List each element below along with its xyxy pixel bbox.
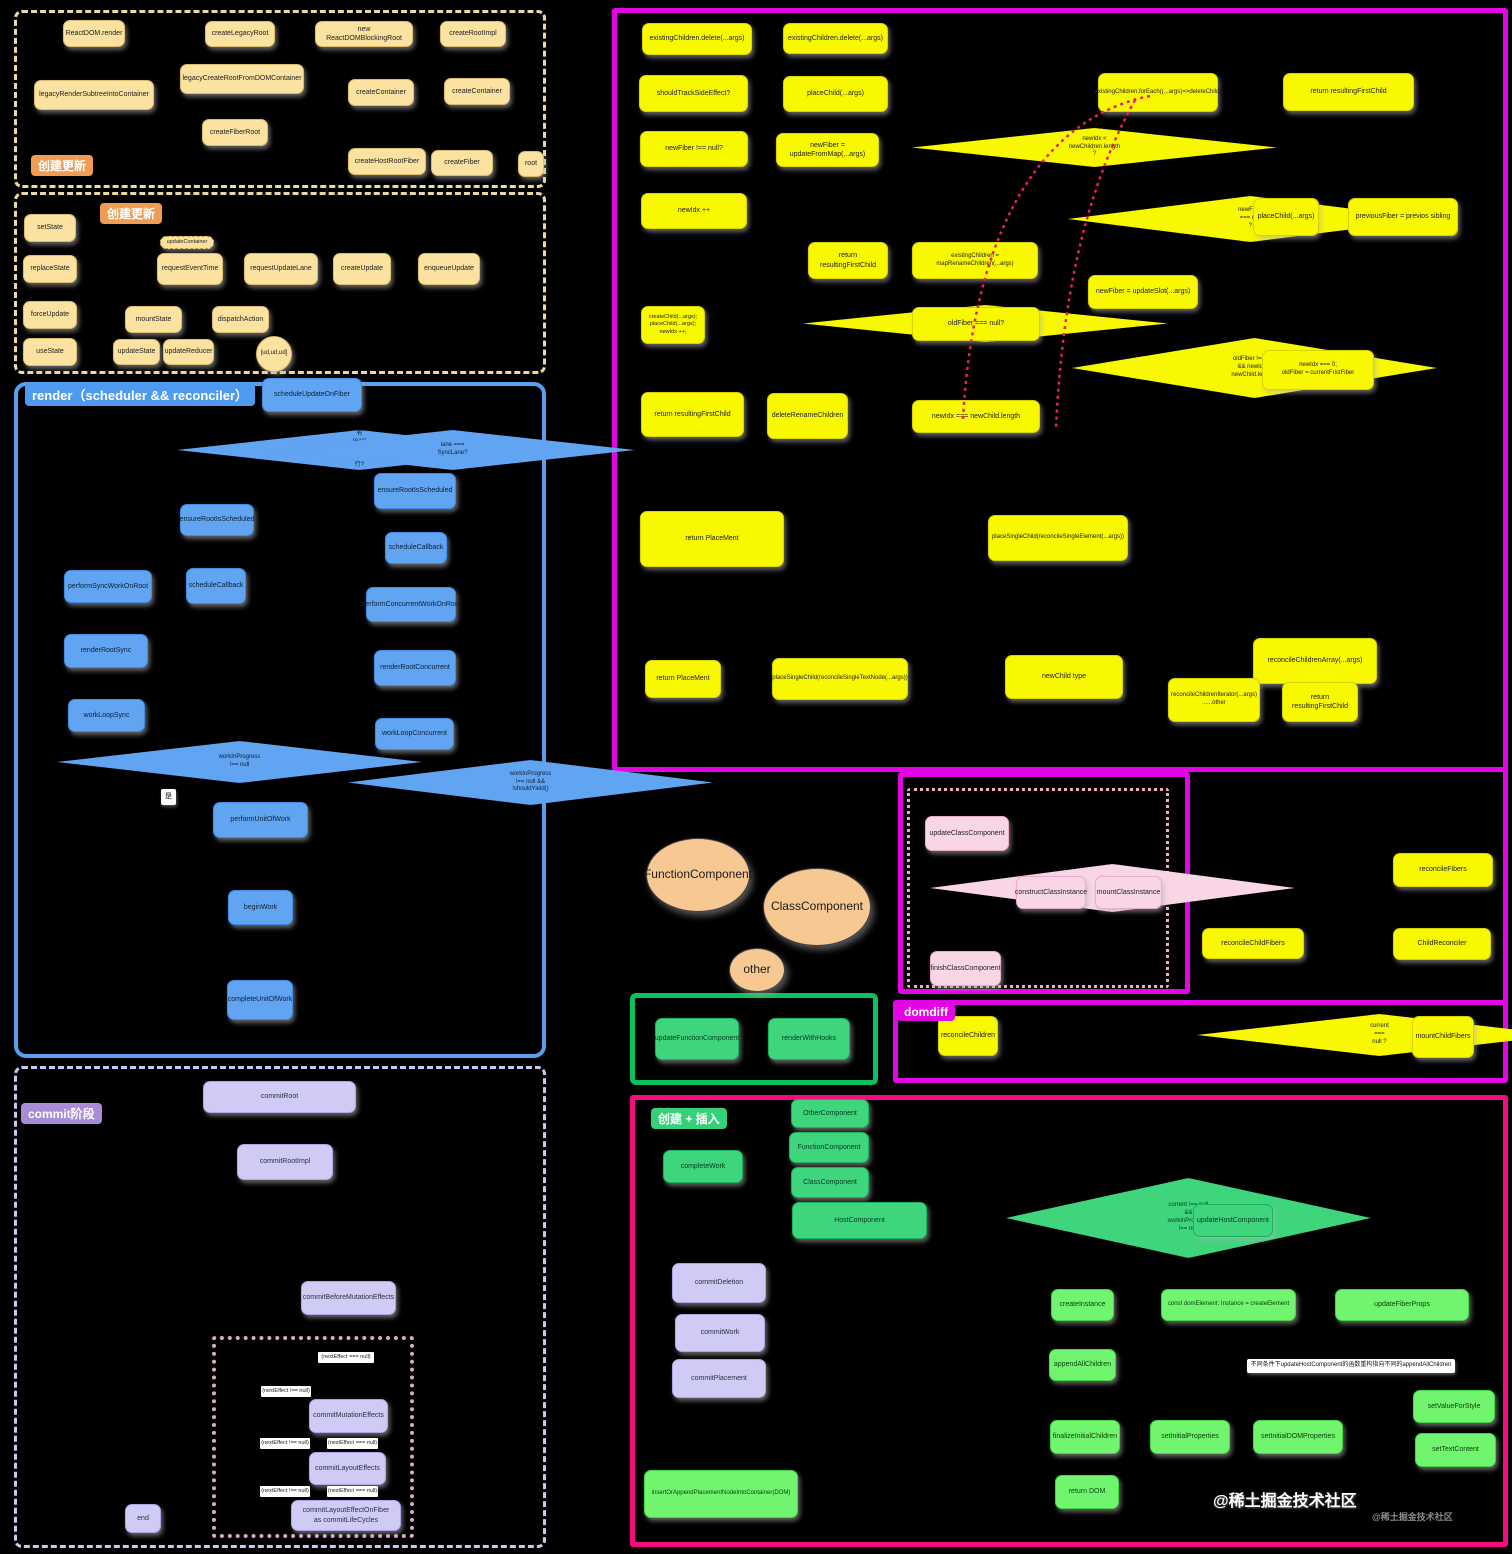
set-initial-dom-properties: setInitialDOMProperties xyxy=(1253,1420,1343,1454)
should-track-side-effect: shouldTrackSideEffect? xyxy=(639,75,748,112)
set-value-for-style: setValueForStyle xyxy=(1413,1390,1495,1423)
end: end xyxy=(125,1504,161,1533)
class-component-ellipse: ClassComponent xyxy=(763,868,871,946)
force-update: forceUpdate xyxy=(23,301,77,329)
append-all-children-note: 不同条件下updateHostComponent的函数重构指向不同的append… xyxy=(1247,1359,1455,1373)
update-container: updateContainer xyxy=(160,236,214,249)
set-text-content: setTextContent xyxy=(1415,1433,1496,1467)
return-dom: return DOM xyxy=(1055,1475,1119,1509)
flowchart-canvas: @稀土掘金技术社区 @稀土掘金技术社区 创建更新创建更新render（sched… xyxy=(0,0,1512,1554)
commit-root-impl: commitRootImpl xyxy=(237,1144,333,1180)
next-effect-not-null-label-2: (nextEffect !== null) xyxy=(260,1438,310,1449)
commit-before-mutation-effects: commitBeforeMutationEffects xyxy=(301,1281,396,1315)
new-fiber-update-slot: newFiber = updateSlot(...args) xyxy=(1088,275,1198,309)
next-effect-not-null-label-3: (nextEffect !== null) xyxy=(260,1486,310,1497)
new-reactdom-blocking-root: new ReactDOMBlockingRoot xyxy=(315,21,413,47)
old-fiber-null: oldFiber === null? xyxy=(912,307,1040,341)
other-ellipse: other xyxy=(729,948,785,992)
newidx-equals-newchild-length: newIdx === newChild.length xyxy=(912,400,1040,433)
create-legacy-root: createLegacyRoot xyxy=(205,21,275,47)
existing-children-delete-2: existingChildren.delete(...args) xyxy=(783,23,888,54)
perform-unit-of-work: performUnitOfWork xyxy=(213,802,308,838)
set-state: setState xyxy=(24,214,76,242)
domdiff-section-label: domdiff xyxy=(897,1003,955,1021)
other-component: OtherComponent xyxy=(791,1099,869,1128)
create-host-root-fiber: createHostRootFiber xyxy=(348,148,426,175)
mount-child-fibers: mountChildFibers xyxy=(1412,1016,1474,1058)
ensure-root-is-scheduled-right: ensureRootIsScheduled xyxy=(374,473,456,509)
create-instance: createInstance xyxy=(1051,1289,1114,1321)
use-state: useState xyxy=(23,338,77,366)
update-function-component: updateFunctionComponent xyxy=(655,1018,739,1060)
render-root-concurrent: renderRootConcurrent xyxy=(374,650,456,686)
replace-state: replaceState xyxy=(23,255,77,283)
place-child-2: placeChild(...args) xyxy=(1253,198,1319,236)
update-state: updateState xyxy=(113,339,160,365)
return-resulting-first-child-2: return resultingFirstChild xyxy=(641,392,744,437)
create-update: createUpdate xyxy=(333,253,391,285)
enqueue-update: enqueueUpdate xyxy=(418,253,480,285)
watermark-large: @稀土掘金技术社区 xyxy=(1213,1487,1357,1511)
reconcile-child-fibers: reconcileChildFibers xyxy=(1202,928,1304,959)
newidx-increment: newIdx ++ xyxy=(641,193,747,229)
yes-note: 是 xyxy=(161,789,176,805)
existing-children-foreach-delete-child: existingChildren.forEach((...args)=>dele… xyxy=(1098,73,1218,112)
host-component-box: HostComponent xyxy=(792,1202,927,1239)
render-root-sync: renderRootSync xyxy=(64,634,148,668)
schedule-callback-left: scheduleCallback xyxy=(186,568,246,604)
reconcile-children-iterator: reconcileChildrenIterator(...args) .....… xyxy=(1168,678,1260,722)
legacy-create-root-from-dom-container: legacyCreateRootFromDOMContainer xyxy=(180,64,304,94)
perform-concurrent-work-on-root: performConcurrentWorkOnRoot xyxy=(366,587,456,622)
set-initial-properties: setInitialProperties xyxy=(1150,1420,1230,1454)
work-loop-concurrent: workLoopConcurrent xyxy=(375,718,454,750)
render-with-hooks: renderWithHooks xyxy=(768,1018,850,1060)
schedule-update-on-fiber: scheduleUpdateOnFiber xyxy=(262,378,362,412)
commit-root: commitRoot xyxy=(203,1081,356,1113)
commit-section-label: commit阶段 xyxy=(21,1103,102,1124)
root: root xyxy=(518,151,544,177)
const-dom-element-create-element: const domElement: Instance = createEleme… xyxy=(1161,1289,1296,1321)
request-update-lane: requestUpdateLane xyxy=(244,253,318,285)
schedule-callback-right: scheduleCallback xyxy=(385,532,447,564)
update-host-component: updateHostComponent xyxy=(1193,1204,1273,1237)
construct-class-instance: constructClassInstance xyxy=(1016,876,1086,909)
finalize-initial-children: finalizeInitialChildren xyxy=(1050,1420,1120,1454)
existing-children-map-rename-children: existingChildren = mapRenameChildren(...… xyxy=(912,242,1038,279)
commit-deletion: commitDeletion xyxy=(672,1263,766,1303)
commit-work: commitWork xyxy=(675,1314,765,1352)
diff-right-connector xyxy=(1503,770,1508,1002)
mount-class-instance: mountClassInstance xyxy=(1095,876,1162,909)
create-container-1: createContainer xyxy=(348,79,414,106)
previous-fiber-previous-sibling: previousFiber = previos sibling xyxy=(1348,198,1458,236)
append-all-children: appendAllChildren xyxy=(1049,1349,1116,1381)
child-reconciler: ChildReconciler xyxy=(1393,928,1491,960)
function-component-ellipse: FunctionComponent xyxy=(646,838,750,912)
commit-layout-effect-on-fiber: commitLayoutEffectOnFiber as commitLifeC… xyxy=(291,1500,401,1531)
update-reducer: updateReducer xyxy=(163,339,214,365)
insert-or-append-placement-node-into-container: insertOrAppendPlacementNodeIntoContainer… xyxy=(644,1470,798,1518)
next-effect-null-label-3: (nextEffect === null) xyxy=(327,1486,378,1497)
legacy-render-subtree-into-container: legacyRenderSubtreeIntoContainer xyxy=(34,80,154,110)
update-fiber-props: updateFiberProps xyxy=(1335,1289,1469,1321)
finish-class-component: finishClassComponent xyxy=(930,951,1001,986)
create-fiber-root: createFiberRoot xyxy=(202,119,268,146)
class-component-box: ClassComponent xyxy=(791,1167,869,1198)
new-child-type: newChild type xyxy=(1005,655,1123,699)
existing-children-delete-1: existingChildren.delete(...args) xyxy=(642,23,752,55)
commit-placement: commitPlacement xyxy=(672,1359,766,1398)
create-update-section-label: 创建更新 xyxy=(100,203,162,224)
create-container-2: createContainer xyxy=(444,78,510,105)
request-event-time: requestEventTime xyxy=(157,253,223,285)
next-effect-null-label-1: (nextEffect === null) xyxy=(318,1352,374,1363)
dispatch-action: dispatchAction xyxy=(212,306,269,333)
reconcile-children: reconcileChildren xyxy=(938,1016,998,1056)
return-placement-1: return PlaceMent xyxy=(640,511,784,567)
watermark-small: @稀土掘金技术社区 xyxy=(1372,1510,1453,1523)
newidx-zero-oldfiber-current-first-fiber: newIdx === 0; oldFiber = currentFristFib… xyxy=(1262,350,1374,390)
function-component-box: FunctionComponent xyxy=(789,1132,869,1163)
place-single-child-reconcile-single-text-node: placeSingleChild(reconcileSingleTextNode… xyxy=(772,658,908,700)
create-fiber: createFiber xyxy=(431,150,493,176)
render-section-label: render（scheduler && reconciler） xyxy=(25,383,255,406)
update-class-component: updateClassComponent xyxy=(925,816,1009,851)
new-fiber-not-null: newFiber !== null? xyxy=(640,131,748,167)
reconcile-children-array: reconcileChildrenArray(...args) xyxy=(1253,638,1377,684)
reactdom-render: ReactDOM.render xyxy=(63,20,125,47)
new-fiber-update-from-map: newFiber = updateFromMap(...args) xyxy=(776,133,879,167)
ud-circle: [ud,ud,ud] xyxy=(256,336,292,372)
return-resulting-first-child-4: return resultingFirstChild xyxy=(1283,73,1414,111)
next-effect-not-null-label-1: (nextEffect !== null) xyxy=(261,1386,311,1397)
begin-work: beginWork xyxy=(228,890,293,925)
place-single-child-reconcile-single-element: placeSingleChild(reconcileSingleElement(… xyxy=(988,515,1128,561)
reconcile-fibers: reconcileFibers xyxy=(1393,853,1493,887)
work-loop-sync: workLoopSync xyxy=(68,699,145,732)
ensure-root-is-scheduled-left: ensureRootIsScheduled xyxy=(180,504,254,536)
create-insert-section-label: 创建 + 插入 xyxy=(651,1108,727,1129)
commit-mutation-effects: commitMutationEffects xyxy=(309,1399,388,1433)
return-resulting-first-child-1: return resultingFirstChild xyxy=(808,242,888,279)
complete-work: completeWork xyxy=(663,1150,743,1183)
mount-state: mountState xyxy=(125,306,182,333)
next-effect-null-label-2: (nextEffect === null) xyxy=(327,1438,378,1449)
return-placement-2: return PlaceMent xyxy=(645,660,721,698)
place-child-1: placeChild(...args) xyxy=(783,76,888,112)
create-root-impl: createRootImpl xyxy=(440,21,506,47)
complete-unit-of-work: completeUnitOfWork xyxy=(227,980,293,1020)
perform-sync-work-on-root: performSyncWorkOnRoot xyxy=(64,570,152,603)
commit-layout-effects: commitLayoutEffects xyxy=(309,1452,386,1485)
delete-rename-children: deleteRenameChildren xyxy=(767,393,848,439)
return-resulting-first-child-3: return resultingFirstChild xyxy=(1282,682,1358,722)
create-root-section-label: 创建更新 xyxy=(31,155,93,176)
create-child-place-child: createChild(...args); placeChild(...args… xyxy=(641,306,705,344)
